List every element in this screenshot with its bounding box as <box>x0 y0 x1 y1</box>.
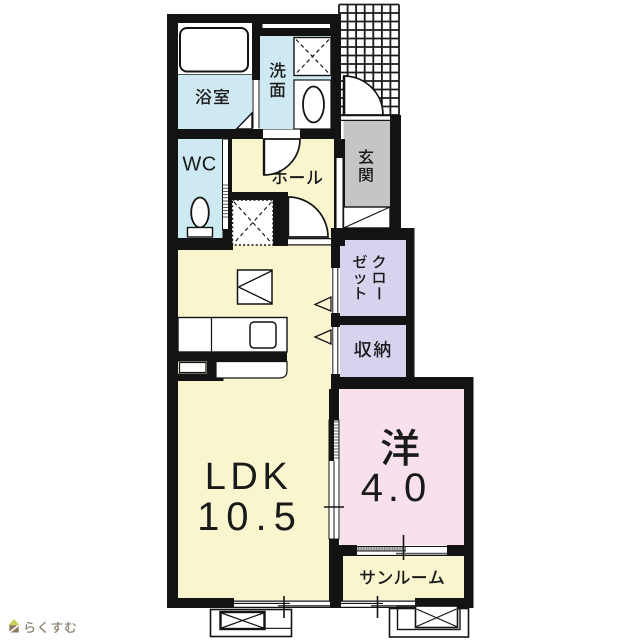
svg-text:10.5: 10.5 <box>197 495 303 539</box>
svg-text:4.0: 4.0 <box>361 466 432 510</box>
svg-text:WC: WC <box>182 154 216 176</box>
svg-text:LDK: LDK <box>205 456 292 498</box>
